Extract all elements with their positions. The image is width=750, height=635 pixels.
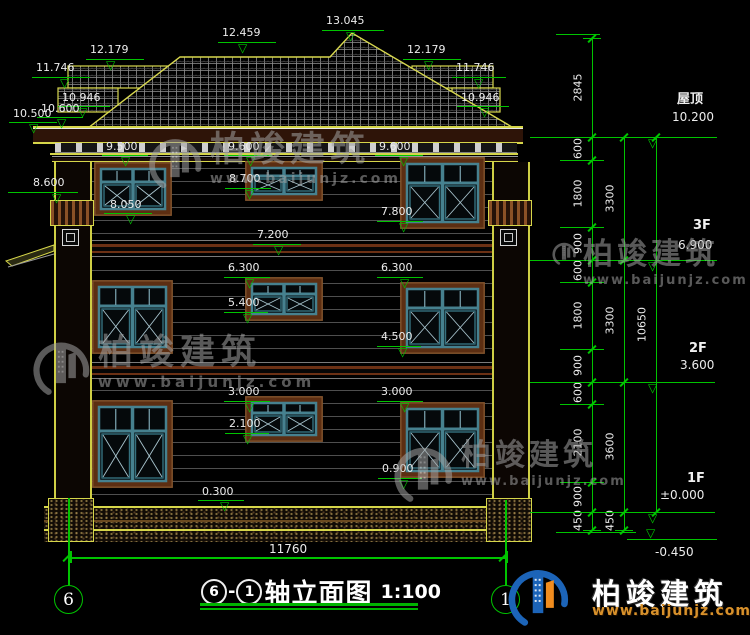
level-marker-triangle: ▽ — [245, 278, 254, 288]
siding-line — [88, 233, 492, 234]
level-marker-triangle: ▽ — [399, 479, 408, 489]
floor-level-value: ±0.000 — [660, 488, 704, 502]
overall-dim-line — [70, 557, 507, 559]
level-marker-line — [8, 192, 78, 193]
level-marker-triangle: ▽ — [480, 107, 489, 117]
level-marker-text: 9.600 — [379, 141, 411, 152]
level-marker-text: 2.100 — [229, 418, 261, 429]
level-marker-triangle: ▽ — [245, 402, 254, 412]
dim-extension-line — [560, 160, 604, 161]
title-axis-b: 1 — [236, 579, 262, 605]
level-marker-text: 12.179 — [90, 44, 129, 55]
level-marker-text: 8.700 — [229, 173, 261, 184]
level-marker-text: 0.300 — [202, 486, 234, 497]
window — [400, 157, 485, 229]
level-marker-triangle: ▽ — [29, 123, 38, 133]
level-marker-triangle: ▽ — [126, 214, 135, 224]
right-pedestal — [486, 498, 532, 542]
dim-extension-line — [556, 532, 636, 533]
siding-line — [88, 494, 492, 495]
title-axis-a: 6 — [201, 579, 227, 605]
level-marker-text: 9.500 — [106, 141, 138, 152]
level-marker-triangle: ▽ — [238, 43, 247, 53]
dim-extension-line — [556, 34, 600, 35]
axis-line-left — [68, 498, 70, 585]
floor-level-line — [627, 539, 717, 540]
dim-extension-line — [560, 404, 604, 405]
level-marker-text: 11.746 — [456, 62, 495, 73]
terrace-line — [44, 520, 522, 522]
watermark-text: 柏竣建筑 — [461, 441, 626, 471]
dim-chain-value: 10650 — [637, 292, 648, 356]
level-marker-triangle: ▽ — [246, 156, 255, 166]
floor-level-value: 6.900 — [678, 238, 712, 252]
dim-chain-value: 450 — [605, 489, 616, 553]
level-marker-text: 10.946 — [461, 92, 500, 103]
dim-extension-line — [560, 349, 604, 350]
level-marker-triangle: ▽ — [424, 60, 433, 70]
brand-logo — [488, 563, 590, 631]
level-marker-triangle: ▽ — [346, 31, 355, 41]
dim-extension-line — [530, 512, 668, 513]
siding-line — [88, 270, 492, 271]
siding-line — [88, 390, 492, 391]
floor-level-value: -0.450 — [655, 545, 694, 559]
level-marker-text: 0.900 — [382, 463, 414, 474]
floor-level-triangle: ▽ — [646, 528, 655, 538]
level-marker-triangle: ▽ — [57, 118, 66, 128]
left-pilaster-ornament — [62, 229, 79, 246]
level-marker-triangle: ▽ — [400, 278, 409, 288]
side-canopy — [6, 245, 54, 267]
title-dash: - — [228, 581, 235, 602]
dim-chain-value: 3300 — [605, 166, 616, 230]
ground-terrace — [44, 506, 522, 542]
floor-level-name: 1F — [687, 471, 705, 486]
level-marker-text: 3.000 — [381, 386, 413, 397]
window — [92, 280, 173, 354]
window — [400, 282, 485, 354]
level-marker-triangle: ▽ — [52, 193, 61, 203]
level-marker-text: 13.045 — [326, 15, 365, 26]
brand-url: www.baijunjz.com — [592, 603, 750, 619]
floor-level-name: 3F — [693, 218, 711, 233]
title-underline-1 — [200, 603, 418, 606]
title-underline-2 — [200, 608, 418, 610]
level-marker-triangle: ▽ — [60, 78, 69, 88]
dim-extension-line — [530, 382, 668, 383]
level-marker-triangle: ▽ — [106, 60, 115, 70]
floor-level-value: 10.200 — [672, 110, 714, 124]
dim-chain-line — [656, 137, 657, 512]
elevation-drawing-sheet: 13.045▽12.459▽12.179▽11.746▽10.946▽10.60… — [0, 0, 750, 635]
floor-separator — [88, 362, 492, 379]
level-marker-text: 12.179 — [407, 44, 446, 55]
floor-level-name: 屋顶 — [677, 88, 703, 107]
dim-extension-line — [560, 282, 604, 283]
dim-chain-value: 2845 — [573, 55, 584, 119]
dim-chain-line — [592, 38, 593, 530]
level-marker-text: 7.200 — [257, 229, 289, 240]
right-pilaster-capital — [488, 200, 532, 226]
level-marker-text: 8.600 — [33, 177, 65, 188]
axis-bubble-left: 6 — [54, 585, 83, 614]
level-marker-triangle: ▽ — [243, 434, 252, 444]
level-marker-text: 7.800 — [381, 206, 413, 217]
level-marker-triangle: ▽ — [220, 501, 229, 511]
level-marker-triangle: ▽ — [121, 156, 130, 166]
floor-level-value: 3.600 — [680, 358, 714, 372]
level-marker-text: 11.746 — [36, 62, 75, 73]
dim-extension-line — [530, 137, 668, 138]
title-scale: 1:100 — [381, 581, 441, 603]
level-marker-triangle: ▽ — [274, 245, 283, 255]
level-marker-triangle: ▽ — [243, 313, 252, 323]
level-marker-triangle: ▽ — [398, 347, 407, 357]
dim-extension-line — [530, 260, 668, 261]
dim-extension-line — [560, 482, 604, 483]
dim-chain-value: 3300 — [605, 289, 616, 353]
level-marker-triangle: ▽ — [399, 222, 408, 232]
right-pilaster-ornament — [500, 229, 517, 246]
level-marker-triangle: ▽ — [474, 78, 483, 88]
level-marker-text: 5.400 — [228, 297, 260, 308]
level-marker-text: 10.500 — [13, 108, 52, 119]
dim-chain-value: 3600 — [605, 415, 616, 479]
level-marker-text: 12.459 — [222, 27, 261, 38]
floor-level-name: 2F — [689, 341, 707, 356]
window — [92, 400, 173, 488]
left-pedestal — [48, 498, 94, 542]
level-marker-text: 4.500 — [381, 331, 413, 342]
level-marker-triangle: ▽ — [245, 189, 254, 199]
dim-chain-value: 450 — [573, 489, 584, 553]
level-marker-text: 3.000 — [228, 386, 260, 397]
level-marker-text: 8.050 — [110, 199, 142, 210]
level-marker-triangle: ▽ — [400, 402, 409, 412]
level-marker-triangle: ▽ — [399, 156, 408, 166]
floor-separator — [88, 240, 492, 257]
level-marker-text: 6.300 — [228, 262, 260, 273]
dim-extension-line — [560, 227, 604, 228]
overall-dim-text: 11760 — [269, 543, 307, 555]
dim-chain-line — [624, 137, 625, 530]
brand-logo-icon — [488, 563, 588, 629]
terrace-line-2 — [44, 529, 522, 531]
level-marker-text: 6.300 — [381, 262, 413, 273]
level-marker-text: 9.600 — [228, 141, 260, 152]
